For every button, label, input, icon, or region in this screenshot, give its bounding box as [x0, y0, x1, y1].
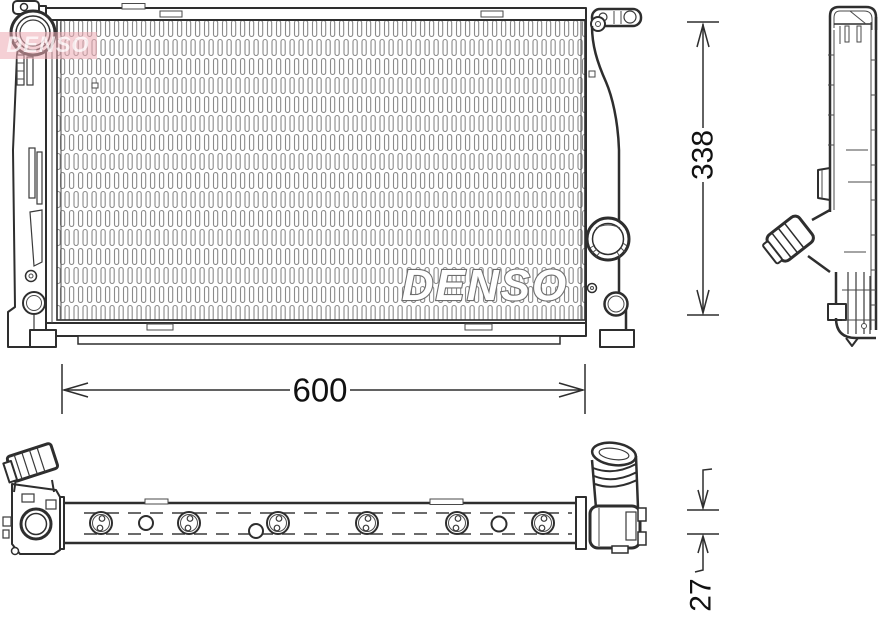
right-foot [600, 330, 634, 347]
bottom-right-connector [590, 440, 646, 553]
dim-width-value: 600 [292, 372, 347, 409]
dim-height-value: 338 [687, 130, 720, 180]
drain-hole [26, 271, 37, 282]
core-clip-left [92, 83, 98, 88]
front-view: DENSO [0, 1, 641, 347]
mount-hole-left [21, 4, 28, 11]
bar-hole [249, 524, 263, 538]
dim-depth-value: 27 [685, 578, 718, 611]
left-foot [30, 330, 56, 347]
bottom-view [2, 440, 646, 554]
dimension-height: 338 [687, 22, 720, 315]
core-clip-right [589, 71, 595, 77]
denso-core-watermark: DENSO [402, 261, 568, 310]
right-tank [586, 9, 641, 347]
denso-watermark-band-text: DENSO [6, 32, 89, 57]
bottom-left-connector [2, 443, 60, 555]
side-view [760, 7, 876, 346]
bar-hole [492, 517, 507, 532]
dimension-depth: 27 [685, 469, 720, 612]
technical-drawing: DENSO [0, 0, 887, 622]
filler-cap [587, 218, 629, 260]
bar-hole [139, 516, 153, 530]
bottom-frame [46, 323, 586, 344]
side-hose-connector [760, 210, 830, 272]
top-frame [46, 4, 586, 21]
dimension-width: 600 [62, 364, 585, 414]
